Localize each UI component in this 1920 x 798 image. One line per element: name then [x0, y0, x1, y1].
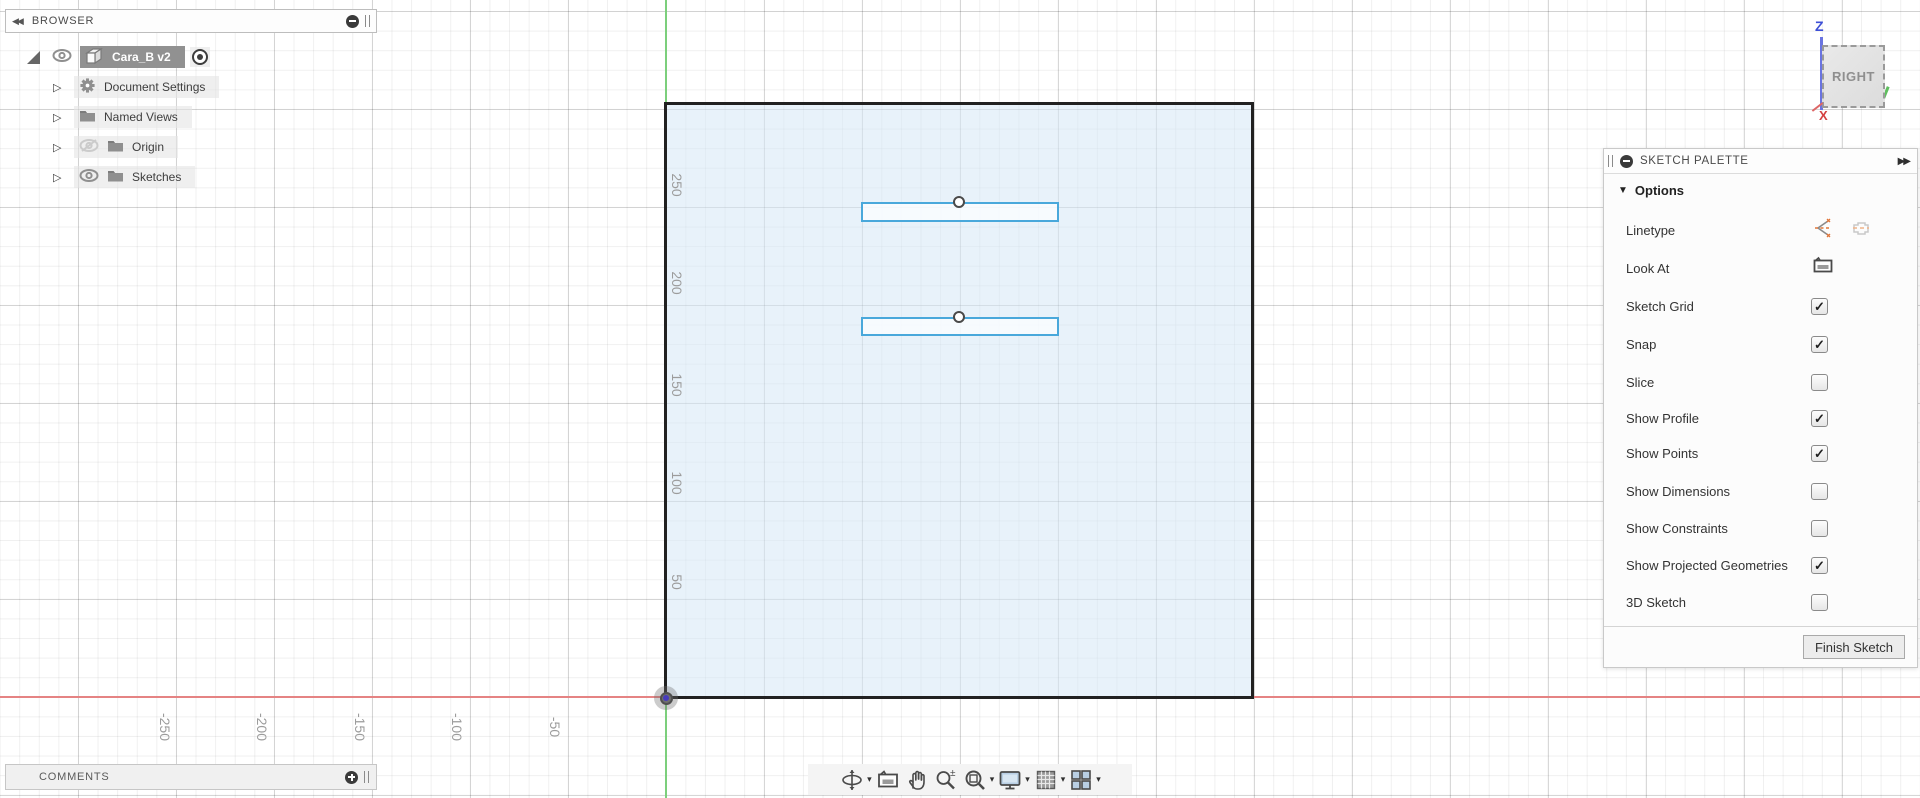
comments-drag-handle[interactable] — [364, 771, 369, 783]
pan-hand-icon — [904, 767, 930, 793]
orbit-icon — [839, 767, 865, 793]
zoom-button[interactable]: ± — [933, 767, 959, 793]
component-name: Cara_B v2 — [112, 50, 171, 64]
look-at-button[interactable] — [875, 767, 901, 793]
palette-row-show-profile: Show Profile — [1604, 400, 1917, 437]
folder-icon — [107, 169, 124, 185]
sketch-point-2[interactable] — [953, 311, 965, 323]
zoom-icon: ± — [933, 767, 959, 793]
palette-row-3d-sketch: 3D Sketch — [1604, 584, 1917, 621]
expand-arrow-icon[interactable]: ▷ — [53, 111, 65, 124]
row-label: Show Projected Geometries — [1626, 558, 1811, 573]
sketch-palette-header[interactable]: SKETCH PALETTE ▶▶ — [1604, 149, 1917, 174]
browser-item-label: Origin — [132, 140, 164, 154]
palette-row-look-at: Look At — [1604, 250, 1917, 287]
view-cube[interactable]: Z RIGHT X — [1795, 10, 1910, 125]
row-label: Sketch Grid — [1626, 299, 1811, 314]
activate-radio-icon[interactable] — [192, 49, 208, 65]
x-grid-label: -100 — [449, 713, 465, 741]
expand-arrow-icon[interactable]: ▷ — [53, 171, 65, 184]
3d-sketch-checkbox[interactable] — [1811, 594, 1828, 611]
grid-settings-button[interactable]: ▾ — [1033, 767, 1066, 793]
orbit-button[interactable]: ▾ — [839, 767, 872, 793]
zoom-window-button[interactable]: ▾ — [962, 767, 995, 793]
sketch-palette: SKETCH PALETTE ▶▶ ▼ Options Linetype Loo… — [1603, 148, 1918, 668]
grid-display-icon — [1033, 767, 1059, 793]
finish-sketch-button[interactable]: Finish Sketch — [1803, 635, 1905, 659]
viewcube-x-axis-label: X — [1819, 108, 1828, 123]
options-section-header[interactable]: ▼ Options — [1618, 183, 1684, 198]
x-grid-label: -200 — [254, 713, 270, 741]
visibility-eye-icon[interactable] — [52, 49, 72, 65]
visibility-off-eye-icon[interactable] — [79, 139, 99, 155]
browser-item-label: Named Views — [104, 110, 178, 124]
chevron-down-icon: ▾ — [1096, 774, 1101, 785]
show-profile-checkbox[interactable] — [1811, 410, 1828, 427]
chevron-down-icon: ▾ — [867, 774, 872, 785]
sketch-profile-square[interactable] — [664, 102, 1254, 699]
palette-drag-handle[interactable] — [1608, 155, 1613, 167]
navigation-toolbar: ▾ ± ▾ ▾ ▾ ▾ — [808, 764, 1132, 795]
x-grid-label: -50 — [547, 717, 563, 737]
viewports-icon — [1068, 767, 1094, 793]
browser-row-sketches[interactable]: ▷ Sketches — [53, 166, 195, 188]
browser-root-row[interactable]: Cara_B v2 — [27, 46, 210, 68]
show-dimensions-checkbox[interactable] — [1811, 483, 1828, 500]
x-grid-label: -250 — [157, 713, 173, 741]
y-grid-label: 150 — [669, 373, 685, 396]
browser-item-label: Sketches — [132, 170, 181, 184]
viewcube-right-face[interactable]: RIGHT — [1822, 45, 1885, 108]
show-projected-geometries-checkbox[interactable] — [1811, 557, 1828, 574]
browser-minimize-icon[interactable] — [346, 15, 359, 28]
palette-row-sketch-grid: Sketch Grid — [1604, 288, 1917, 325]
browser-drag-handle[interactable] — [365, 15, 370, 27]
y-grid-label: 250 — [669, 173, 685, 196]
pan-button[interactable] — [904, 767, 930, 793]
palette-footer: Finish Sketch — [1604, 626, 1917, 667]
expand-arrow-icon[interactable]: ▷ — [53, 81, 65, 94]
y-grid-label: 50 — [669, 574, 685, 590]
viewports-button[interactable]: ▾ — [1068, 767, 1101, 793]
row-label: 3D Sketch — [1626, 595, 1811, 610]
row-label: Show Dimensions — [1626, 484, 1811, 499]
browser-collapse-icon[interactable]: ◀◀ — [12, 16, 22, 27]
palette-row-linetype: Linetype — [1604, 212, 1917, 249]
row-label: Show Profile — [1626, 411, 1811, 426]
row-label: Look At — [1626, 261, 1811, 276]
gear-icon — [79, 77, 96, 97]
browser-title: BROWSER — [32, 15, 346, 27]
row-label: Show Points — [1626, 446, 1811, 461]
sketch-point-1[interactable] — [953, 196, 965, 208]
folder-icon — [79, 109, 96, 125]
show-constraints-checkbox[interactable] — [1811, 520, 1828, 537]
browser-row-named-views[interactable]: ▷ Named Views — [53, 106, 192, 128]
row-label: Show Constraints — [1626, 521, 1811, 536]
chevron-down-icon: ▾ — [1061, 774, 1066, 785]
browser-row-origin[interactable]: ▷ Origin — [53, 136, 178, 158]
y-grid-label: 100 — [669, 471, 685, 494]
expand-arrow-icon[interactable] — [27, 51, 40, 64]
centerline-linetype-icon[interactable] — [1849, 216, 1873, 245]
browser-row-document-settings[interactable]: ▷ Document Settings — [53, 76, 219, 98]
palette-row-slice: Slice — [1604, 364, 1917, 401]
x-grid-label: -150 — [352, 713, 368, 741]
browser-panel-header[interactable]: ◀◀ BROWSER — [5, 9, 377, 33]
palette-row-show-points: Show Points — [1604, 435, 1917, 472]
snap-checkbox[interactable] — [1811, 336, 1828, 353]
zoom-window-icon — [962, 767, 988, 793]
look-at-icon — [875, 767, 901, 793]
y-grid-label: 200 — [669, 271, 685, 294]
expand-arrow-icon[interactable]: ▷ — [53, 141, 65, 154]
component-cube-icon — [84, 46, 104, 69]
palette-minimize-icon[interactable] — [1620, 155, 1633, 168]
row-label: Slice — [1626, 375, 1811, 390]
add-comment-icon[interactable] — [345, 771, 358, 784]
palette-title: SKETCH PALETTE — [1640, 155, 1891, 167]
show-points-checkbox[interactable] — [1811, 445, 1828, 462]
palette-row-show-dimensions: Show Dimensions — [1604, 473, 1917, 510]
palette-expand-icon[interactable]: ▶▶ — [1898, 156, 1909, 167]
chevron-down-icon: ▾ — [1025, 774, 1030, 785]
origin-point[interactable] — [654, 686, 678, 710]
viewcube-face-label: RIGHT — [1832, 69, 1875, 84]
slice-checkbox[interactable] — [1811, 374, 1828, 391]
fusion360-sketch-workspace: { "browser": { "collapse_icon": "◀◀", "t… — [0, 0, 1920, 798]
section-collapse-triangle-icon[interactable]: ▼ — [1618, 185, 1628, 196]
svg-text:±: ± — [950, 768, 956, 779]
palette-row-show-constraints: Show Constraints — [1604, 510, 1917, 547]
sketch-grid-checkbox[interactable] — [1811, 298, 1828, 315]
viewcube-z-axis-label: Z — [1815, 18, 1824, 34]
visibility-eye-icon[interactable] — [79, 169, 99, 185]
row-label: Snap — [1626, 337, 1811, 352]
construction-linetype-icon[interactable] — [1811, 216, 1835, 245]
display-settings-button[interactable]: ▾ — [997, 767, 1030, 793]
palette-row-snap: Snap — [1604, 326, 1917, 363]
look-at-icon[interactable] — [1811, 254, 1835, 283]
comments-panel-header[interactable]: COMMENTS — [5, 764, 377, 790]
row-label: Linetype — [1626, 223, 1811, 238]
folder-icon — [107, 139, 124, 155]
browser-item-label: Document Settings — [104, 80, 205, 94]
chevron-down-icon: ▾ — [990, 774, 995, 785]
display-settings-icon — [997, 767, 1023, 793]
palette-row-show-projected-geometries: Show Projected Geometries — [1604, 547, 1917, 584]
options-section-label: Options — [1635, 183, 1684, 198]
activate-component-control[interactable] — [190, 47, 210, 67]
comments-title: COMMENTS — [39, 771, 345, 783]
active-component-label[interactable]: Cara_B v2 — [80, 46, 185, 68]
